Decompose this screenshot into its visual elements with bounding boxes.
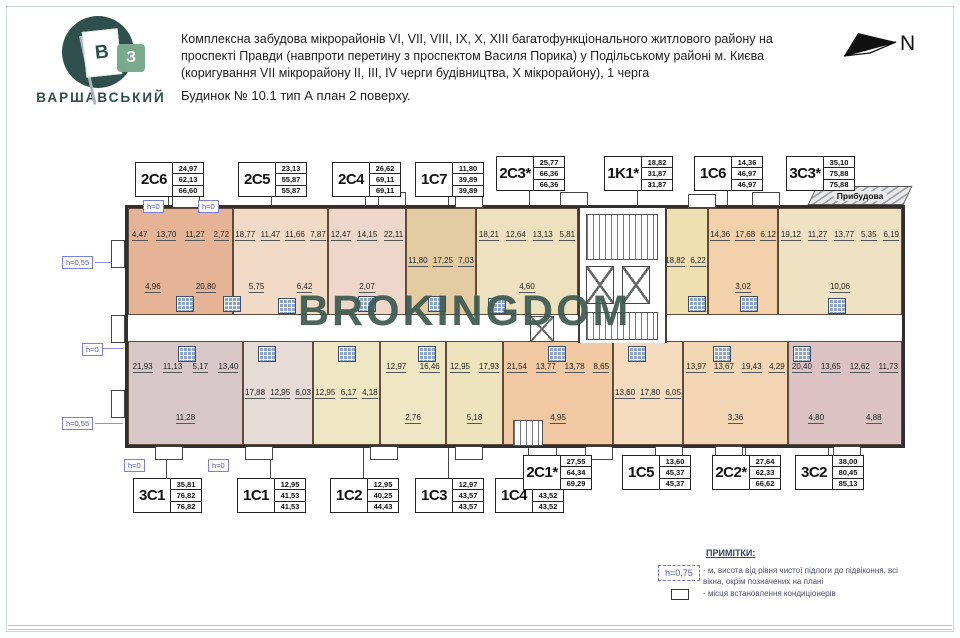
unit-area: 41,53 [275, 502, 305, 512]
apartment-1C1: 17,8812,956,03 [243, 341, 313, 445]
unit-type: 1C7 [416, 163, 453, 196]
unit-type: 3C1 [134, 479, 171, 512]
bathroom-tile [628, 346, 646, 362]
unit-type: 1K1* [605, 157, 642, 190]
unit-area: 43,57 [453, 502, 483, 512]
unit-area-list: 26,6269,1169,11 [370, 163, 400, 196]
room-area: 7,03 [458, 256, 474, 267]
unit-area: 12,95 [275, 479, 305, 490]
unit-label-2C4: 2C4 26,6269,1169,11 [332, 162, 401, 197]
unit-type: 2C5 [239, 163, 276, 196]
room-area: 5,17 [193, 362, 209, 373]
unit-area: 55,87 [276, 186, 306, 196]
room-area: 14,36 [710, 230, 730, 241]
unit-area: 38,00 [833, 456, 863, 467]
ac-spot [752, 192, 780, 206]
unit-area: 11,80 [453, 163, 483, 174]
unit-area: 64,34 [561, 467, 591, 478]
unit-area: 13,60 [660, 456, 690, 467]
room-area: 5,35 [861, 230, 877, 241]
unit-area: 39,89 [453, 186, 483, 196]
room-area: 6,19 [883, 230, 899, 241]
unit-area: 43,52 [533, 490, 563, 501]
unit-area: 39,89 [453, 174, 483, 185]
unit-label-3C1: 3C1 35,8176,8276,82 [133, 478, 202, 513]
bathroom-tile [278, 298, 296, 314]
unit-label-1C5: 1C5 13,6045,3745,37 [622, 455, 691, 490]
room-area: 6,03 [295, 388, 311, 399]
room-area: 4,18 [362, 388, 378, 399]
unit-area-list: 27,6462,3366,62 [750, 456, 780, 489]
unit-area: 85,13 [833, 479, 863, 489]
unit-label-3C2: 3C2 38,0080,4585,13 [795, 455, 864, 490]
room-area: 20,40 [792, 362, 812, 373]
room-area: 4,80 [808, 413, 824, 424]
room-area: 13,77 [834, 230, 854, 241]
unit-area: 69,11 [370, 186, 400, 196]
unit-label-1K1: 1K1* 18,8231,8731,87 [604, 156, 673, 191]
room-area: 13,77 [536, 362, 556, 373]
unit-area: 66,36 [534, 180, 564, 190]
room-area: 17,93 [479, 362, 499, 373]
ac-spot [155, 446, 183, 460]
room-areas: 12,9517,935,18 [448, 343, 501, 443]
room-area: 18,21 [479, 230, 499, 241]
room-area: 5,75 [249, 282, 265, 293]
room-area: 11,27 [808, 230, 827, 241]
annotation-line [95, 423, 123, 424]
room-area: 11,66 [285, 230, 304, 241]
room-area: 17,80 [640, 388, 660, 399]
unit-type: 3C2 [796, 456, 833, 489]
room-area: 12,95 [270, 388, 290, 399]
unit-area: 43,57 [453, 490, 483, 501]
bathroom-tile [223, 296, 241, 312]
room-area: 4,29 [769, 362, 785, 373]
unit-area: 62,13 [173, 174, 203, 185]
unit-label-1C6: 1C6 14,3646,9746,97 [694, 156, 763, 191]
unit-area: 14,36 [732, 157, 762, 168]
room-area: 7,87 [310, 230, 326, 241]
unit-type: 1C6 [695, 157, 732, 190]
room-area: 4,88 [866, 413, 882, 424]
unit-type: 2C3* [497, 157, 534, 190]
apartment-2C2: 13,9713,6719,434,293,36 [683, 341, 788, 445]
unit-area: 41,53 [275, 490, 305, 501]
room-area: 5,18 [467, 413, 483, 424]
unit-area-list: 35,1075,8875,88 [824, 157, 854, 190]
unit-area: 35,10 [824, 157, 854, 168]
apartment-1C3: 12,9716,462,76 [380, 341, 446, 445]
unit-label-1C1: 1C1 12,9541,5341,53 [237, 478, 306, 513]
bathroom-tile [176, 296, 194, 312]
unit-type: 1C3 [416, 479, 453, 512]
leader-line [448, 448, 449, 478]
north-arrow-icon: N [838, 28, 918, 68]
unit-label-2C5: 2C5 23,1355,8755,87 [238, 162, 307, 197]
unit-area: 31,87 [642, 168, 672, 179]
unit-area: 46,97 [732, 168, 762, 179]
room-area: 13,65 [821, 362, 841, 373]
room-area: 6,12 [760, 230, 776, 241]
unit-area: 12,97 [453, 479, 483, 490]
room-area: 2,76 [405, 413, 421, 424]
unit-area: 44,43 [368, 502, 398, 512]
unit-area: 76,82 [171, 490, 201, 501]
unit-type: 1C2 [331, 479, 368, 512]
legend-h-badge: h=0,75 [658, 565, 700, 581]
room-area: 17,68 [735, 230, 755, 241]
legend-note-height: - м, висота від рівня чистої підлоги до … [703, 566, 918, 588]
ac-spot [455, 446, 483, 460]
room-area: 11,80 [408, 256, 427, 267]
unit-area-list: 24,9762,1366,60 [173, 163, 203, 196]
room-area: 19,43 [742, 362, 762, 373]
leader-line [556, 448, 557, 455]
bathroom-tile [258, 346, 276, 362]
brand-square-icon: З [117, 44, 145, 72]
room-area: 12,64 [506, 230, 526, 241]
unit-label-1C7: 1C7 11,8039,8939,89 [415, 162, 484, 197]
unit-area-list: 38,0080,4585,13 [833, 456, 863, 489]
unit-type: 2C2* [713, 456, 750, 489]
bathroom-tile [828, 298, 846, 314]
legend-note-ac: - місця встановлення кондиціонерів [703, 589, 918, 598]
unit-area: 27,64 [750, 456, 780, 467]
room-area: 11,28 [176, 413, 195, 424]
height-annotation: h=0 [143, 200, 164, 213]
room-area: 12,97 [386, 362, 406, 373]
unit-area-list: 13,6045,3745,37 [660, 456, 690, 489]
room-areas: 13,9713,6719,434,293,36 [685, 343, 786, 443]
room-area: 12,95 [315, 388, 335, 399]
height-annotation: h=0 [82, 343, 103, 356]
unit-area-list: 27,5564,3469,29 [561, 456, 591, 489]
room-area: 13,97 [686, 362, 706, 373]
unit-area: 45,37 [660, 467, 690, 478]
unit-area-list: 14,3646,9746,97 [732, 157, 762, 190]
leader-line [727, 189, 728, 205]
room-area: 13,13 [533, 230, 553, 241]
unit-area: 35,81 [171, 479, 201, 490]
room-area: 11,73 [879, 362, 898, 373]
watermark: BROKINGDOM [298, 287, 631, 336]
unit-label-2C1: 2C1* 27,5564,3469,29 [523, 455, 592, 490]
unit-type: 2C6 [136, 163, 173, 196]
room-area: 11,13 [163, 362, 182, 373]
staircase [586, 214, 658, 260]
unit-area: 23,13 [276, 163, 306, 174]
unit-type: 3C3* [787, 157, 824, 190]
room-area: 12,47 [331, 230, 351, 241]
room-area: 12,95 [450, 362, 470, 373]
bathroom-tile [740, 296, 758, 312]
room-area: 4,96 [145, 282, 161, 293]
room-area: 3,36 [728, 413, 744, 424]
bathroom-tile [178, 346, 196, 362]
unit-area-list: 12,9540,2544,43 [368, 479, 398, 512]
unit-label-1C3: 1C3 12,9743,5743,57 [415, 478, 484, 513]
unit-area-list: 12,9541,5341,53 [275, 479, 305, 512]
room-area: 19,12 [781, 230, 801, 241]
unit-area: 12,95 [368, 479, 398, 490]
room-area: 21,93 [133, 362, 153, 373]
room-areas: 17,8812,956,03 [245, 343, 311, 443]
unit-area: 69,11 [370, 174, 400, 185]
room-area: 17,25 [433, 256, 453, 267]
room-area: 14,15 [357, 230, 377, 241]
room-area: 16,46 [420, 362, 440, 373]
room-area: 13,67 [714, 362, 734, 373]
room-area: 11,27 [185, 230, 204, 241]
unit-area: 62,33 [750, 467, 780, 478]
brand-name: ВАРШАВСЬКИЙ [26, 90, 176, 105]
unit-area: 75,88 [824, 180, 854, 190]
unit-area-list: 25,7766,3666,36 [534, 157, 564, 190]
bathroom-tile [688, 296, 706, 312]
unit-area: 80,45 [833, 467, 863, 478]
leader-line [363, 448, 364, 478]
annotation-line [100, 348, 123, 349]
project-description: Комплексна забудова мікрорайонів VI, VII… [181, 31, 829, 81]
room-area: 4,47 [132, 230, 148, 241]
ac-spot [688, 194, 716, 208]
bathroom-tile [548, 346, 566, 362]
room-area: 21,54 [507, 362, 527, 373]
unit-area: 66,60 [173, 186, 203, 196]
leader-line [637, 189, 638, 205]
leader-line [745, 448, 746, 455]
unit-area: 76,82 [171, 502, 201, 512]
bathroom-tile [338, 346, 356, 362]
unit-area: 69,29 [561, 479, 591, 489]
unit-area: 24,97 [173, 163, 203, 174]
unit-area-list: 11,8039,8939,89 [453, 163, 483, 196]
room-area: 11,47 [261, 230, 280, 241]
unit-label-1C2: 1C2 12,9540,2544,43 [330, 478, 399, 513]
room-area: 5,81 [559, 230, 575, 241]
leader-line [529, 189, 530, 205]
bathroom-tile [418, 346, 436, 362]
unit-area-list: 35,8176,8276,82 [171, 479, 201, 512]
unit-type: 2C4 [333, 163, 370, 196]
unit-area-list: 23,1355,8755,87 [276, 163, 306, 196]
room-area: 17,88 [245, 388, 265, 399]
room-area: 18,82 [665, 256, 685, 267]
unit-label-3C3: 3C3* 35,1075,8875,88 [786, 156, 855, 191]
unit-area: 66,36 [534, 168, 564, 179]
room-area: 10,06 [830, 282, 850, 293]
leader-line [828, 448, 829, 455]
unit-area: 40,25 [368, 490, 398, 501]
unit-label-2C3: 2C3* 25,7766,3666,36 [496, 156, 565, 191]
apartment-1C5: 13,6017,806,05 [613, 341, 683, 445]
unit-area: 31,87 [642, 180, 672, 190]
ac-spot [245, 446, 273, 460]
room-area: 4,95 [550, 413, 566, 424]
unit-area: 43,52 [533, 502, 563, 512]
unit-area: 27,55 [561, 456, 591, 467]
unit-area: 46,97 [732, 180, 762, 190]
unit-type: 2C1* [524, 456, 561, 489]
room-area: 6,17 [341, 388, 357, 399]
unit-area: 26,62 [370, 163, 400, 174]
height-annotation: h=0 [124, 459, 145, 472]
height-annotation: h=0,55 [62, 417, 93, 430]
north-letter: N [900, 32, 915, 56]
ac-spot [560, 192, 588, 206]
unit-area-list: 12,9743,5743,57 [453, 479, 483, 512]
height-annotation: h=0 [198, 200, 219, 213]
room-area: 12,62 [850, 362, 870, 373]
unit-area: 18,82 [642, 157, 672, 168]
room-area: 13,60 [615, 388, 635, 399]
unit-area: 75,88 [824, 168, 854, 179]
unit-area: 25,77 [534, 157, 564, 168]
room-area: 2,72 [214, 230, 230, 241]
room-area: 6,05 [665, 388, 681, 399]
bathroom-tile [793, 346, 811, 362]
unit-area: 55,87 [276, 174, 306, 185]
ac-spot [111, 390, 125, 418]
pribudova-label: Прибудова [834, 191, 887, 201]
apartment-1C4: 12,9517,935,18 [446, 341, 503, 445]
room-area: 8,65 [593, 362, 609, 373]
room-area: 13,40 [218, 362, 238, 373]
legend-title: ПРИМІТКИ: [706, 548, 755, 558]
building-title: Будинок № 10.1 тип А план 2 поверху. [181, 88, 829, 103]
ac-spot [111, 315, 125, 343]
unit-label-2C2: 2C2* 27,6462,3366,62 [712, 455, 781, 490]
room-area: 6,22 [690, 256, 706, 267]
legend-ac-icon [671, 589, 689, 600]
unit-type: 1C1 [238, 479, 275, 512]
room-areas: 13,6017,806,05 [615, 343, 681, 443]
room-area: 22,11 [384, 230, 403, 241]
room-area: 13,78 [565, 362, 585, 373]
unit-area-list: 18,8231,8731,87 [642, 157, 672, 190]
bathroom-tile [713, 346, 731, 362]
room-area: 13,70 [156, 230, 176, 241]
room-area: 3,02 [735, 282, 751, 293]
unit-area: 66,62 [750, 479, 780, 489]
entrance-stairs [513, 420, 543, 446]
room-area: 18,77 [235, 230, 255, 241]
room-area: 20,80 [196, 282, 216, 293]
height-annotation: h=0 [208, 459, 229, 472]
ac-spot [370, 446, 398, 460]
unit-type: 1C5 [623, 456, 660, 489]
unit-label-2C6: 2C6 24,9762,1366,60 [135, 162, 204, 197]
height-annotation: h=0,55 [62, 256, 93, 269]
unit-area: 45,37 [660, 479, 690, 489]
ac-spot [111, 240, 125, 268]
page-frame-bottom [8, 625, 952, 630]
